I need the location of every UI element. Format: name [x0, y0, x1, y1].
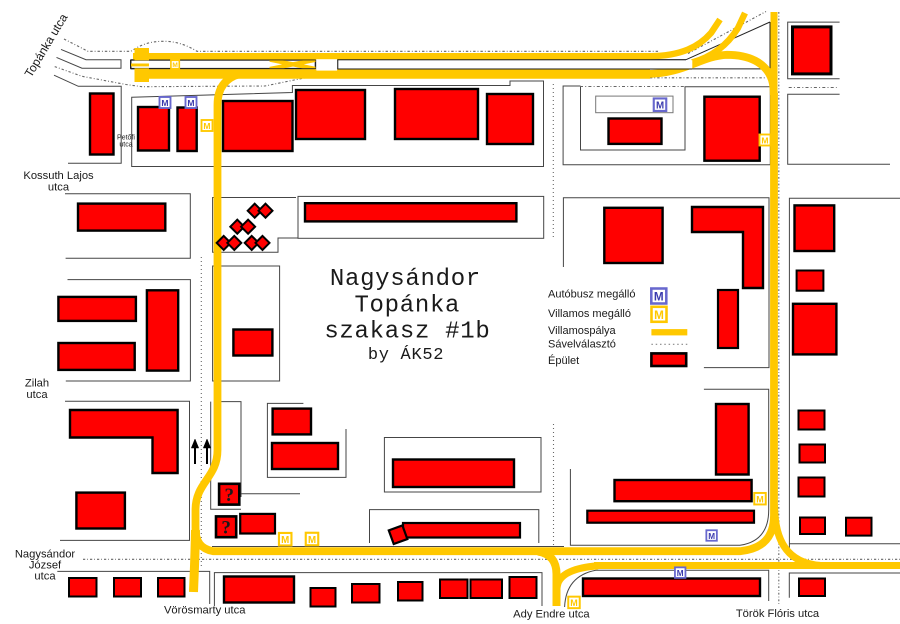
- svg-text:utca: utca: [119, 142, 132, 149]
- svg-text:utca: utca: [34, 571, 56, 583]
- svg-text:utca: utca: [26, 389, 48, 401]
- svg-text:Török Flóris utca: Török Flóris utca: [736, 608, 820, 620]
- svg-text:M: M: [756, 494, 763, 504]
- svg-text:Petőfi: Petőfi: [117, 135, 135, 142]
- svg-text:by ÁK52: by ÁK52: [368, 345, 444, 365]
- svg-text:Sávelválasztó: Sávelválasztó: [548, 339, 616, 351]
- svg-text:M: M: [203, 121, 210, 131]
- svg-text:M: M: [654, 309, 664, 322]
- svg-text:?: ?: [221, 518, 231, 539]
- svg-text:M: M: [172, 62, 178, 69]
- svg-text:M: M: [281, 535, 289, 546]
- svg-text:Nagysándor: Nagysándor: [330, 266, 481, 293]
- svg-text:M: M: [654, 291, 664, 304]
- svg-text:M: M: [761, 135, 768, 145]
- svg-text:Topánka: Topánka: [354, 293, 460, 320]
- svg-text:Épület: Épület: [548, 354, 579, 367]
- svg-text:M: M: [708, 532, 715, 541]
- svg-text:Zilah: Zilah: [25, 378, 49, 390]
- svg-text:Ady Endre utca: Ady Endre utca: [513, 609, 590, 621]
- svg-text:M: M: [570, 598, 577, 608]
- svg-text:M: M: [187, 98, 194, 108]
- svg-text:Vörösmarty utca: Vörösmarty utca: [164, 605, 246, 617]
- svg-text:Villamospálya: Villamospálya: [548, 325, 617, 337]
- svg-text:Autóbusz megálló: Autóbusz megálló: [548, 288, 635, 300]
- svg-text:utca: utca: [48, 182, 70, 194]
- svg-text:Kossuth Lajos: Kossuth Lajos: [23, 170, 94, 182]
- svg-text:M: M: [161, 98, 168, 108]
- svg-text:M: M: [308, 535, 316, 546]
- svg-text:Villamos megálló: Villamos megálló: [548, 308, 631, 320]
- svg-text:M: M: [656, 101, 664, 112]
- svg-text:?: ?: [224, 485, 234, 506]
- svg-text:szakasz #1b: szakasz #1b: [324, 319, 490, 346]
- svg-text:M: M: [677, 569, 684, 578]
